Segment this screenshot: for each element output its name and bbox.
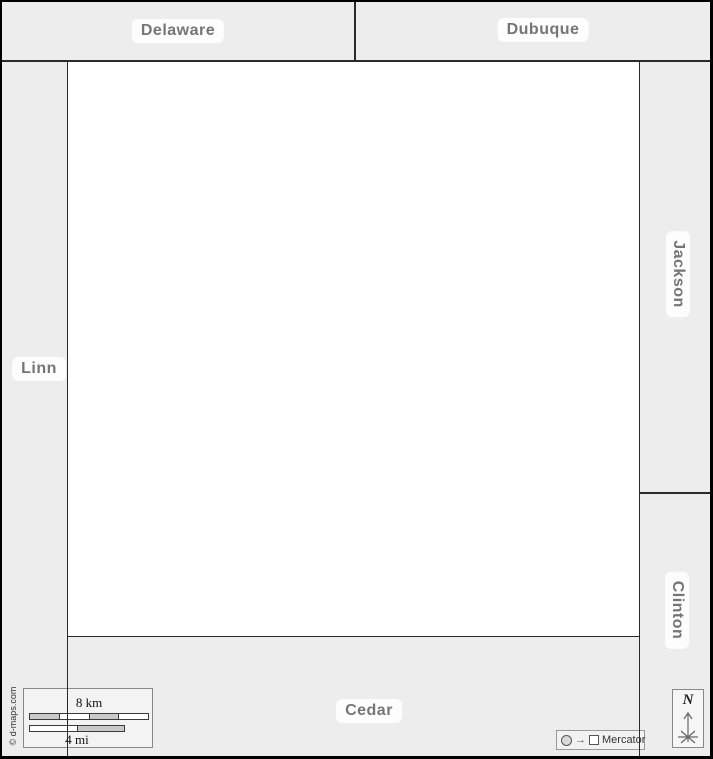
scale-km-label: 8 km <box>29 695 149 711</box>
scale-km-bar <box>29 713 149 720</box>
county-label-cedar: Cedar <box>336 699 402 723</box>
north-label: N <box>673 692 703 708</box>
county-label-dubuque: Dubuque <box>498 18 589 42</box>
county-label-clinton: Clinton <box>665 572 689 649</box>
projection-arrow-icon: → <box>575 735 586 746</box>
boundary-linn-cedar <box>67 636 68 759</box>
county-label-jackson: Jackson <box>666 231 690 317</box>
county-label-delaware: Delaware <box>132 19 224 43</box>
projected-square-icon <box>589 735 599 745</box>
county-map: Delaware Dubuque Linn Jackson Clinton Ce… <box>0 0 713 759</box>
main-county-area <box>67 61 640 637</box>
north-indicator: N <box>672 689 704 748</box>
projection-badge: → Mercator <box>556 730 645 750</box>
boundary-clinton-cedar <box>639 636 640 759</box>
scale-bar-box: 8 km 4 mi <box>23 688 153 748</box>
scale-mi-bar <box>29 725 125 732</box>
boundary-north <box>0 60 713 62</box>
compass-arrow-icon <box>673 708 703 746</box>
boundary-delaware-dubuque <box>354 0 356 61</box>
county-label-linn: Linn <box>12 357 66 381</box>
scale-mi-label: 4 mi <box>29 732 125 748</box>
attribution-text: © d-maps.com <box>8 687 18 746</box>
boundary-jackson-clinton <box>640 492 713 494</box>
globe-circle-icon <box>561 735 572 746</box>
